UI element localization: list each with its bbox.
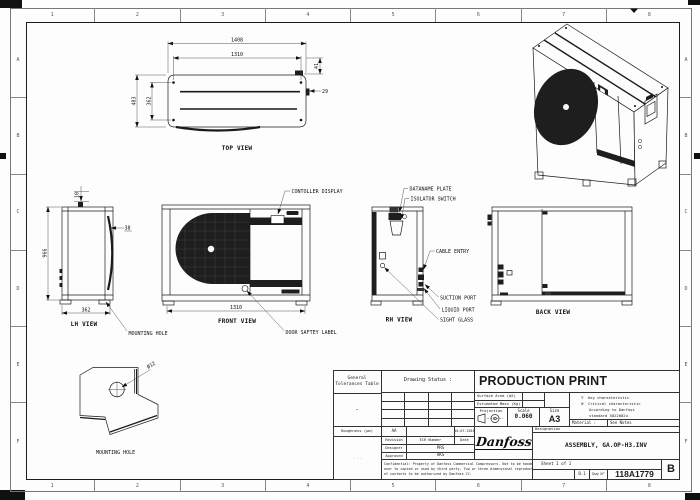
fold-mark-top xyxy=(630,9,638,14)
ecr-col-header: ECR Number xyxy=(407,437,455,445)
designation-value: ASSEMBLY, GA.OP-H3.INV xyxy=(533,433,680,460)
dim-10: 10 xyxy=(75,192,81,198)
isolator-switch xyxy=(389,213,402,220)
front-view: 1310 FRONT VIEW CONTOLLER DISPLAY DOOR S… xyxy=(162,189,343,336)
back-view: BACK VIEW xyxy=(488,207,633,316)
lh-view: 10 966 38 362 LH VIEW MOUNTING HOLE xyxy=(43,186,168,337)
top-view-label: TOP VIEW xyxy=(222,145,253,152)
isometric-view xyxy=(524,24,668,186)
mounting-hole-detail: Ø12 MOUNTING HOLE xyxy=(80,360,158,456)
dwg-no-label: Dwg N° xyxy=(590,470,608,480)
dim-hole-diameter: Ø12 xyxy=(146,360,157,371)
callout-controller-display: CONTOLLER DISPLAY xyxy=(292,189,343,195)
dwg-no-value: 118A1779 xyxy=(608,470,662,480)
first-angle-projection-icon xyxy=(476,413,506,424)
cable-entry xyxy=(419,268,424,273)
designer-label: Designer xyxy=(382,445,407,453)
door-safety-label xyxy=(242,286,248,292)
callout-cable-entry: CABLE ENTRY xyxy=(436,249,469,255)
scale-value: 0.060 xyxy=(514,414,532,421)
size-value: A3 xyxy=(549,414,561,424)
approved-value: AKS xyxy=(407,453,475,461)
revision-letter: B xyxy=(662,460,680,480)
scale-cell: Scale 0.060 xyxy=(508,408,540,427)
surface-area-label: Surface Area (m2) xyxy=(475,393,523,401)
danfoss-logo: Danfoss xyxy=(475,435,533,450)
dim-1310-top: 1310 xyxy=(231,52,243,58)
designer-value: PRS xyxy=(407,445,475,453)
isolator-switch-top xyxy=(295,71,303,76)
spec-spacer xyxy=(545,393,570,408)
approved-label: Approved xyxy=(382,453,407,461)
drawing-status-value: PRODUCTION PRINT xyxy=(475,370,680,393)
dim-362-lh: 362 xyxy=(81,308,90,314)
confidential-note: Confidential: Property of Danfoss Commer… xyxy=(382,460,533,480)
format-note: B.1 xyxy=(575,470,590,480)
revision-col-header: Revision xyxy=(382,437,407,445)
rh-view: RH VIEW DATANAME PLATE ISOLATOR SWITCH C… xyxy=(371,187,476,324)
bottom-row-spacer xyxy=(533,470,575,480)
callout-suction-port: SUCTION PORT xyxy=(440,296,476,302)
standard-note-line-2: standard 50220024 xyxy=(581,413,677,419)
dim-483: 483 xyxy=(132,96,138,105)
lh-view-label: LH VIEW xyxy=(71,321,98,328)
dim-38: 38 xyxy=(125,226,131,232)
confidential-line-3: of contents to be authorized by Danfoss … xyxy=(384,472,530,477)
danfoss-mini-logo xyxy=(287,211,299,215)
sheet-info: Sheet 1 of 1 xyxy=(533,460,662,470)
dim-1408: 1408 xyxy=(231,38,243,44)
suction-port xyxy=(418,275,424,281)
fan-hub xyxy=(208,246,214,252)
controller-display xyxy=(271,216,284,224)
logo-cell: Danfoss xyxy=(475,427,533,460)
coil-strip xyxy=(372,212,377,295)
dim-362-top: 362 xyxy=(147,96,153,105)
dim-1310-front: 1310 xyxy=(230,305,242,311)
ecr-number-value xyxy=(407,427,455,437)
switch-body xyxy=(390,221,403,235)
material-value: See Notes xyxy=(608,420,680,427)
estimated-mass-value xyxy=(523,401,545,409)
callout-sight-glass: SIGHT GLASS xyxy=(440,318,473,324)
callout-isolator-switch: ISOLATOR SWITCH xyxy=(411,197,456,203)
date-col-header: Date xyxy=(455,437,475,445)
revision-date: 16-07-2018 xyxy=(455,427,475,437)
dim-29: 29 xyxy=(322,89,328,95)
drawing-sheet: 1 2 3 4 5 6 7 8 1 2 3 4 5 6 7 8 A B C D … xyxy=(0,0,700,500)
surface-area-value xyxy=(523,393,545,401)
estimated-mass-label: Estimated Mass (Kg) xyxy=(475,401,523,409)
revision-current: AA xyxy=(382,427,407,437)
sight-glass xyxy=(380,263,384,267)
dim-966: 966 xyxy=(43,248,49,257)
roughness-label: Roughness (µm) xyxy=(333,427,382,437)
material-label: Material : xyxy=(570,420,608,427)
callout-mounting-hole: MOUNTING HOLE xyxy=(129,331,168,337)
critical-characteristic-label: Critical characteristic xyxy=(588,401,641,406)
tolerances-table-title: General Tolerances Table xyxy=(333,370,382,394)
tolerances-value: - xyxy=(333,394,382,427)
top-view: 1408 1310 41 29 483 362 TOP VIEW xyxy=(132,38,329,153)
rh-view-label: RH VIEW xyxy=(386,317,413,324)
dataname-plate xyxy=(380,253,386,260)
dim-41: 41 xyxy=(314,63,320,69)
liquid-port xyxy=(419,282,424,287)
tolerance-notes: . .. xyxy=(333,437,382,480)
confidential-line-2: over to copied or used by third party. T… xyxy=(384,467,530,472)
projection-cell: Projection xyxy=(475,408,508,427)
revision-history-grid xyxy=(382,393,475,427)
callout-liquid-port: LIQUID PORT xyxy=(442,308,475,314)
size-cell: Size A3 xyxy=(540,408,570,427)
callout-dataname-plate: DATANAME PLATE xyxy=(410,187,452,193)
front-view-label: FRONT VIEW xyxy=(218,318,256,325)
drawing-status-label: Drawing Status : xyxy=(382,370,475,393)
callout-door-safety-label: DOOR SAFTEY LABEL xyxy=(286,330,337,336)
key-characteristic-label: Key characteristic xyxy=(588,395,629,400)
critical-characteristic-icon: ⊗ xyxy=(581,401,588,407)
confidential-line-1: Confidential: Property of Danfoss Commer… xyxy=(384,462,530,467)
back-view-label: BACK VIEW xyxy=(536,309,570,316)
mounting-hole-detail-label: MOUNTING HOLE xyxy=(96,450,135,456)
characteristics-box: ▽Key characteristic ⊗Critical characteri… xyxy=(570,393,680,420)
